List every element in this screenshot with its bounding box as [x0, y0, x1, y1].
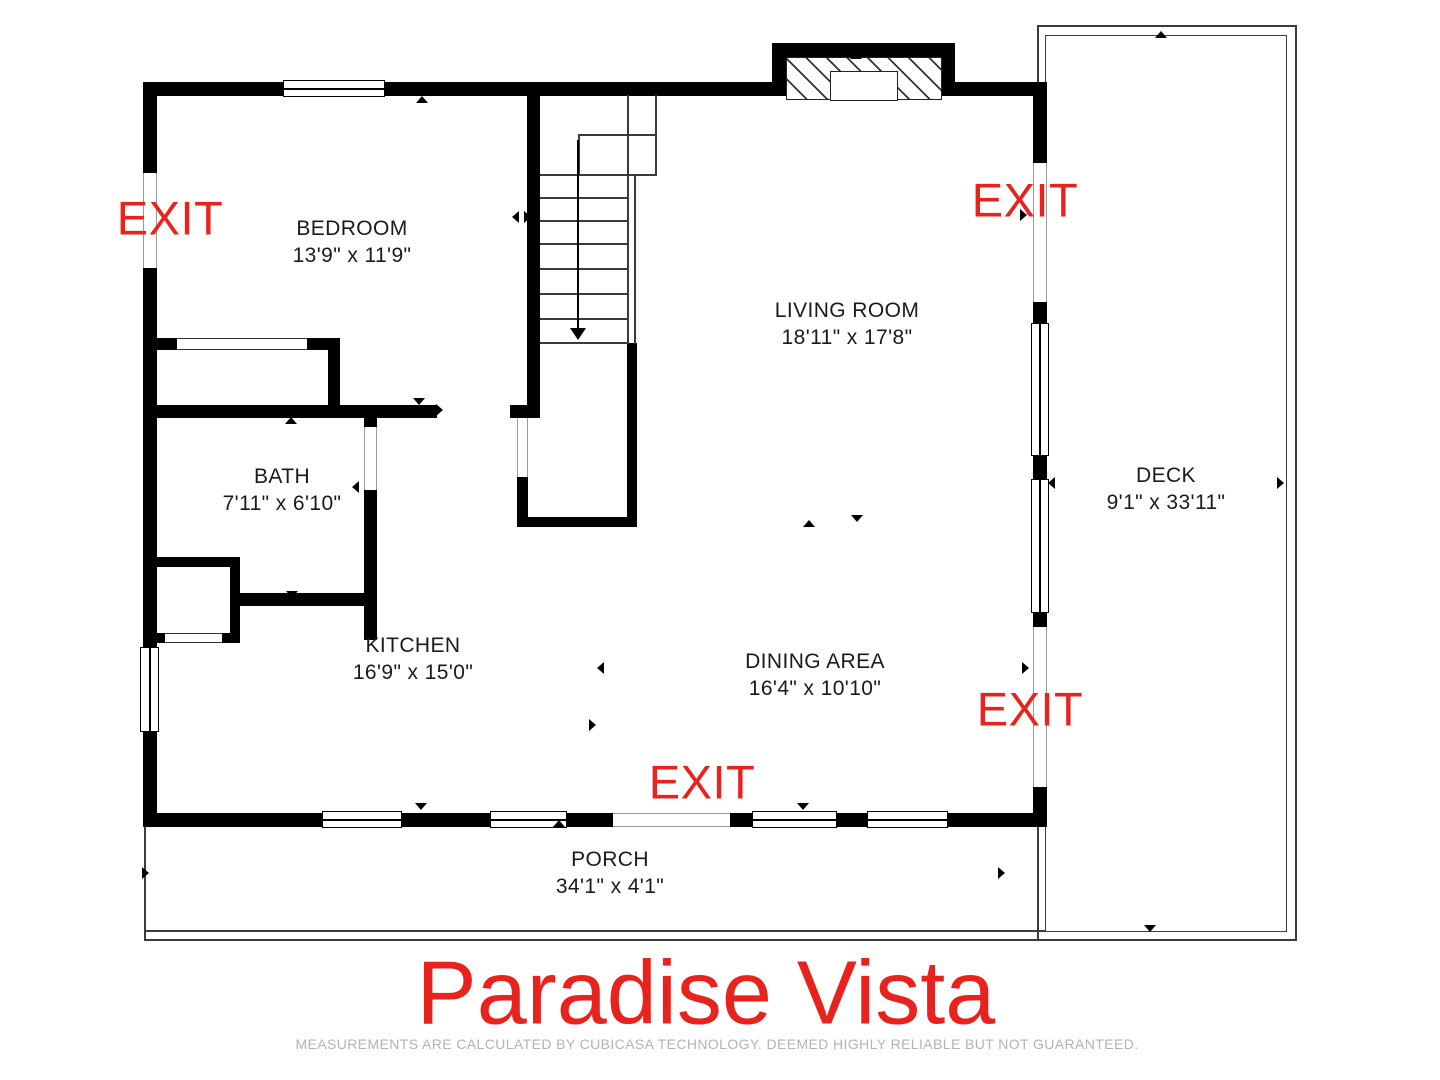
disclaimer-text: MEASUREMENTS ARE CALCULATED BY CUBICASA …: [295, 1036, 1138, 1052]
room-name-kitchen: KITCHEN: [353, 632, 473, 659]
door-opening-stairs: [517, 418, 528, 477]
room-dims-bath: 7'11" x 6'10": [223, 490, 342, 517]
wall-bedroom-east: [527, 96, 540, 418]
page-title: Paradise Vista: [417, 943, 996, 1046]
marker-icon: [436, 404, 443, 416]
wall-stair-east: [627, 343, 637, 527]
room-name-living-room: LIVING ROOM: [775, 297, 919, 324]
room-label-living-room: LIVING ROOM 18'11" x 17'8": [775, 297, 919, 351]
room-label-bath: BATH 7'11" x 6'10": [223, 463, 342, 517]
wall-wc-closet-bottom-b: [222, 633, 240, 643]
porch-left-line: [144, 827, 146, 940]
door-opening-wc-closet: [165, 633, 222, 643]
marker-icon: [512, 211, 519, 223]
room-dims-living-room: 18'11" x 17'8": [775, 324, 919, 351]
window-living-east-1: [1031, 323, 1049, 456]
room-name-dining-area: DINING AREA: [745, 648, 885, 675]
room-name-porch: PORCH: [556, 846, 664, 873]
stair-upper-box-top: [578, 134, 657, 136]
marker-icon: [413, 398, 425, 405]
fireplace-firebox: [830, 71, 898, 101]
window-bedroom-north: [283, 80, 385, 97]
marker-icon: [150, 481, 157, 493]
wall-bath-south: [237, 593, 377, 606]
window-south-1: [322, 811, 402, 828]
marker-icon: [285, 417, 297, 424]
wall-wc-closet-bottom-a: [150, 633, 165, 643]
porch-bottom-inner-line: [144, 930, 1046, 932]
marker-icon: [1048, 477, 1055, 489]
marker-icon: [524, 211, 531, 223]
marker-icon: [797, 803, 809, 810]
stair-tread-1: [540, 174, 655, 176]
wall-closet-top-a: [155, 338, 177, 350]
wall-closet-east: [328, 338, 340, 418]
room-label-deck: DECK 9'1" x 33'11": [1107, 462, 1226, 516]
marker-icon: [589, 719, 596, 731]
stair-tread-5: [540, 268, 628, 270]
marker-icon: [1277, 477, 1284, 489]
stair-direction-line: [577, 140, 579, 330]
room-label-porch: PORCH 34'1" x 4'1": [556, 846, 664, 900]
marker-icon: [1022, 662, 1029, 674]
stair-tread-4: [540, 243, 628, 245]
marker-icon: [415, 803, 427, 810]
floor-plan: BEDROOM 13'9" x 11'9" LIVING ROOM 18'11"…: [0, 0, 1440, 1080]
exit-label-south: EXIT: [649, 755, 755, 810]
marker-icon: [142, 867, 149, 879]
marker-icon: [850, 52, 862, 59]
marker-icon: [1155, 31, 1167, 38]
marker-icon: [416, 96, 428, 103]
marker-icon: [998, 867, 1005, 879]
stair-tread-2: [540, 197, 628, 199]
exit-label-east: EXIT: [977, 682, 1083, 737]
room-dims-kitchen: 16'9" x 15'0": [353, 659, 473, 686]
window-kitchen-west: [140, 647, 159, 732]
door-opening-bath: [364, 427, 377, 490]
wall-bath-east: [364, 490, 377, 640]
stair-rail-line-inner: [634, 174, 636, 344]
wall-wc-closet-east: [230, 557, 240, 643]
marker-icon: [597, 662, 604, 674]
stair-tread-6: [540, 293, 628, 295]
room-dims-deck: 9'1" x 33'11": [1107, 489, 1226, 516]
window-south-4: [867, 811, 948, 828]
stair-tread-7: [540, 318, 628, 320]
marker-icon: [352, 481, 359, 493]
marker-icon: [553, 820, 565, 827]
stair-tread-3: [540, 220, 628, 222]
room-dims-dining-area: 16'4" x 10'10": [745, 675, 885, 702]
room-label-dining-area: DINING AREA 16'4" x 10'10": [745, 648, 885, 702]
wall-stair-south: [517, 517, 637, 527]
door-opening-bedroom-closet: [177, 338, 307, 350]
porch-bottom-outer-line: [144, 939, 1038, 941]
wall-bath-east-stub: [364, 418, 377, 427]
room-name-bedroom: BEDROOM: [293, 215, 412, 242]
room-dims-porch: 34'1" x 4'1": [556, 873, 664, 900]
exit-label-northeast: EXIT: [972, 173, 1078, 228]
marker-icon: [851, 515, 863, 522]
door-opening-exit-south: [613, 813, 730, 827]
exit-label-west: EXIT: [117, 191, 223, 246]
stair-tread-8: [540, 342, 628, 344]
wall-hall-stub: [510, 405, 540, 418]
room-dims-bedroom: 13'9" x 11'9": [293, 242, 412, 269]
marker-icon: [1144, 925, 1156, 932]
wall-wc-closet-top: [157, 557, 240, 567]
room-label-kitchen: KITCHEN 16'9" x 15'0": [353, 632, 473, 686]
marker-icon: [803, 520, 815, 527]
room-name-deck: DECK: [1107, 462, 1226, 489]
window-south-3: [752, 811, 837, 828]
window-living-east-2: [1031, 479, 1049, 613]
room-label-bedroom: BEDROOM 13'9" x 11'9": [293, 215, 412, 269]
room-name-bath: BATH: [223, 463, 342, 490]
marker-icon: [286, 591, 298, 598]
stair-down-arrow-icon: [570, 328, 586, 340]
